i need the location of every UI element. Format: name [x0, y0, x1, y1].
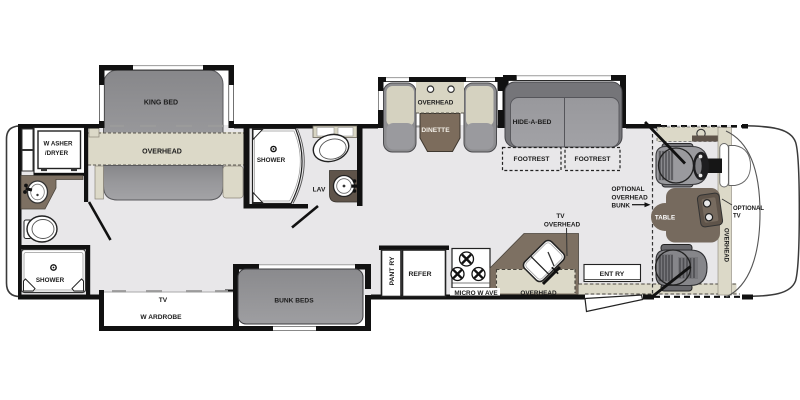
svg-text:W ARDROBE: W ARDROBE	[140, 314, 182, 321]
svg-text:FOOTREST: FOOTREST	[575, 156, 611, 163]
svg-text:OVERHEAD: OVERHEAD	[612, 194, 649, 201]
svg-text:MICRO W AVE: MICRO W AVE	[454, 290, 498, 297]
svg-text:SHOWER: SHOWER	[36, 277, 65, 284]
svg-text:OVERHEAD: OVERHEAD	[544, 222, 581, 229]
svg-text:FOOTREST: FOOTREST	[514, 156, 550, 163]
svg-text:ENT RY: ENT RY	[600, 271, 625, 278]
svg-text:PANT RY: PANT RY	[389, 256, 396, 286]
svg-text:TABLE: TABLE	[655, 215, 675, 222]
svg-text:KING BED: KING BED	[144, 100, 178, 107]
svg-text:DINETTE: DINETTE	[421, 127, 450, 134]
svg-text:LAV: LAV	[313, 187, 326, 194]
svg-text:SHOWER: SHOWER	[257, 157, 286, 164]
svg-text:REFER: REFER	[408, 271, 431, 278]
svg-text:OVERHEAD: OVERHEAD	[142, 149, 182, 156]
svg-text:TV: TV	[159, 297, 168, 304]
svg-text:OVERHEAD: OVERHEAD	[723, 228, 729, 263]
svg-text:/DRYER: /DRYER	[45, 150, 69, 157]
svg-text:TV: TV	[733, 214, 741, 220]
svg-text:BUNK BEDS: BUNK BEDS	[274, 298, 314, 305]
svg-text:OVERHEAD: OVERHEAD	[418, 100, 454, 107]
svg-text:W ASHER: W ASHER	[44, 141, 74, 148]
svg-text:OPTIONAL: OPTIONAL	[612, 186, 645, 193]
svg-text:HIDE-A-BED: HIDE-A-BED	[513, 119, 552, 126]
svg-text:OVERHEAD: OVERHEAD	[520, 290, 557, 297]
svg-text:BUNK: BUNK	[612, 203, 631, 210]
svg-text:OPTIONAL: OPTIONAL	[733, 206, 764, 212]
svg-text:TV: TV	[556, 213, 565, 220]
